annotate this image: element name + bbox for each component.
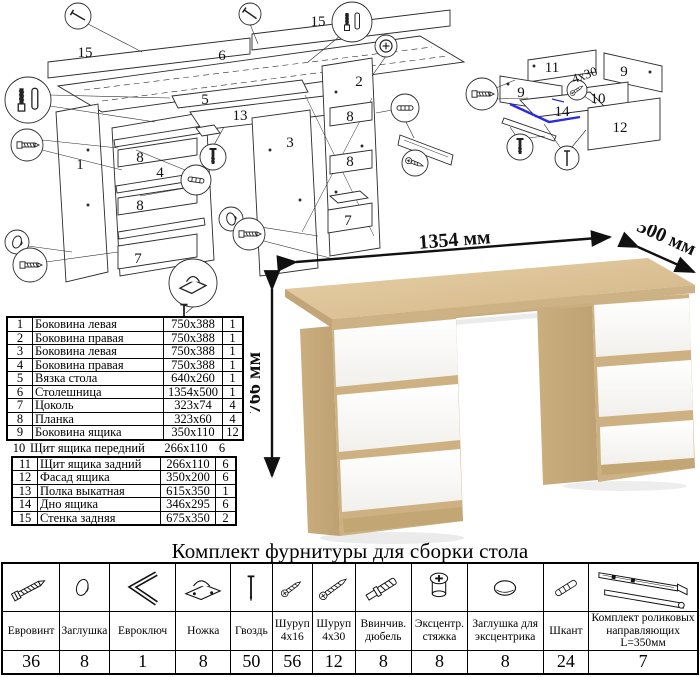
- dowel-icon: [181, 165, 211, 195]
- dowel-icon: [391, 94, 419, 122]
- hardware-qty: 24: [543, 650, 589, 674]
- cam-lock-icon: [375, 35, 397, 57]
- part-name: Вязка стола: [33, 372, 164, 386]
- hardware-name: Шуруп 4х16: [272, 612, 312, 651]
- part-name: Фасад ящика: [38, 471, 161, 485]
- table-row: 14Дно ящика346x2956: [12, 498, 236, 512]
- parts-table-block-b: 11Щит ящика задний266x1106 12Фасад ящика…: [11, 456, 237, 527]
- part-num: 6: [7, 385, 33, 399]
- part-num: 14: [12, 498, 38, 512]
- part-qty: 1: [223, 372, 244, 386]
- hardware-qty: 36: [2, 650, 60, 674]
- part-size: 640x260: [164, 372, 223, 386]
- hardware-name: Евровинт: [2, 612, 60, 651]
- table-row: 5Вязка стола640x2601: [7, 372, 243, 386]
- drawer-front: [600, 420, 694, 465]
- part-num: 5: [7, 372, 33, 386]
- part-label: 3: [286, 135, 294, 151]
- part-label: 6: [218, 48, 226, 64]
- hardware-qty: 8: [176, 650, 231, 674]
- part-label: 14: [555, 104, 571, 120]
- euro-screw-icon: [11, 129, 43, 161]
- parts-table-block-a: 1Боковина левая750x3881 2Боковина правая…: [6, 316, 244, 441]
- part-label: 10: [591, 91, 606, 107]
- table-row: 8Планка323x604: [7, 412, 243, 426]
- part-label: 9: [517, 85, 525, 101]
- screw-in-dowel-icon: [357, 565, 409, 611]
- hardware-names-row: Евровинт Заглушка Евроключ Ножка Гвоздь …: [2, 612, 698, 651]
- part-qty: 6: [216, 457, 237, 471]
- hardware-qty: 1: [109, 650, 176, 674]
- part-label: 12: [613, 120, 628, 136]
- part-size: 615x350: [161, 484, 216, 498]
- part-qty: 1: [223, 345, 244, 359]
- nail-icon: [233, 565, 269, 611]
- part-name: Стенка задняя: [38, 511, 161, 525]
- hardware-qty: 12: [313, 650, 355, 674]
- cam-lock-icon: [415, 565, 463, 611]
- nail-icon: [239, 3, 261, 25]
- drawer-front: [594, 298, 691, 357]
- hardware-qty: 50: [231, 650, 272, 674]
- part-num: 10: [8, 441, 30, 456]
- hardware-name: Ножка: [176, 612, 231, 651]
- wood-dowel-icon: [546, 565, 586, 611]
- part-label: 8: [346, 154, 354, 170]
- table-row: 4Боковина правая750x3881: [7, 358, 243, 372]
- hardware-name: Заглушка для эксцентрика: [467, 612, 543, 651]
- part-size: 750x388: [164, 345, 223, 359]
- parts-table: 1Боковина левая750x3881 2Боковина правая…: [6, 316, 244, 526]
- table-row: 15Стенка задняя675x3502: [12, 511, 236, 525]
- part-name: Цоколь: [33, 399, 164, 413]
- table-row: 13Полка выкатная615x3501: [12, 484, 236, 498]
- part-num: 4: [7, 358, 33, 372]
- part-name: Полка выкатная: [38, 484, 161, 498]
- left-pedestal: [300, 315, 463, 536]
- drawer-exploded-view: 11 9 9 10 14 12 4x30: [466, 50, 662, 170]
- part-name: Боковина правая: [33, 331, 164, 345]
- part-qty: 6: [214, 441, 230, 456]
- cap-icon: [62, 565, 106, 611]
- part-label: 9: [620, 64, 628, 80]
- hardware-name: Заглушка: [60, 612, 110, 651]
- right-pedestal: [537, 294, 695, 485]
- part-size: 350x110: [164, 426, 223, 440]
- part-qty: 6: [216, 498, 237, 512]
- part-size: 350x200: [161, 471, 216, 485]
- part-name: Боковина левая: [33, 345, 164, 359]
- part-size: 266x110: [161, 457, 216, 471]
- drawer-front: [337, 384, 460, 452]
- hardware-name: Ввинчив. дюбель: [355, 612, 412, 651]
- part-num: 11: [12, 457, 38, 471]
- part-num: 2: [7, 331, 33, 345]
- hardware-name: Шуруп 4х30: [313, 612, 355, 651]
- part-num: 3: [7, 345, 33, 359]
- euro-screw-icon: [6, 565, 56, 611]
- part-size: 266x110: [158, 441, 214, 456]
- part-size: 323x60: [164, 412, 223, 426]
- table-row: 10 Щит ящика передний 266x110 6: [6, 441, 244, 456]
- part-num: 1: [7, 317, 33, 331]
- hardware-qty: 8: [355, 650, 412, 674]
- part-label: 1: [76, 157, 84, 173]
- depth-dimension-label: 500 мм: [634, 225, 700, 260]
- part-label: 7: [134, 251, 142, 267]
- foot-icon: [169, 259, 217, 307]
- part-num: 12: [12, 471, 38, 485]
- drawer-front: [597, 360, 693, 417]
- part-num: 8: [7, 412, 33, 426]
- nail-icon: [555, 146, 579, 170]
- hex-key-icon: [113, 565, 173, 611]
- part-qty: 6: [216, 471, 237, 485]
- part-size: 346x295: [161, 498, 216, 512]
- part-qty: 1: [216, 484, 237, 498]
- table-row: 3Боковина левая750x3881: [7, 345, 243, 359]
- part-size: 675x350: [161, 511, 216, 525]
- part-num: 7: [7, 399, 33, 413]
- hardware-kit-title: Комплект фурнитуры для сборки стола: [0, 539, 700, 564]
- part-name: Боковина ящика: [33, 426, 164, 440]
- part-name: Щит ящика задний: [38, 457, 161, 471]
- part-num: 13: [12, 484, 38, 498]
- roller-guides-icon: [592, 565, 694, 611]
- part-size: 323x74: [164, 399, 223, 413]
- part-qty: 1: [223, 331, 244, 345]
- hardware-name: Шкант: [543, 612, 589, 651]
- screw-4x16-icon: [274, 565, 310, 611]
- table-row: 11Щит ящика задний266x1106: [12, 457, 236, 471]
- nail-icon: [65, 3, 91, 29]
- part-name: Щит ящика передний: [30, 441, 158, 456]
- part-name: Боковина левая: [33, 317, 164, 331]
- part-qty: 1: [223, 358, 244, 372]
- hardware-qty: 8: [467, 650, 543, 674]
- part-name: Дно ящика: [38, 498, 161, 512]
- part-name: Столешница: [33, 385, 164, 399]
- part-num: 15: [12, 511, 38, 525]
- table-row: 2Боковина правая750x3881: [7, 331, 243, 345]
- hardware-name: Комплект роликовых направляющих L=350мм: [589, 612, 698, 651]
- part-size: 1354x500: [164, 385, 223, 399]
- foot-icon: [178, 565, 228, 611]
- hardware-name: Эксцентр. стяжка: [412, 612, 468, 651]
- cam-cap-icon: [475, 565, 535, 611]
- part-label: 15: [78, 45, 93, 61]
- height-dimension-label: 766 мм: [250, 352, 265, 414]
- part-label: 11: [545, 60, 559, 76]
- screw-4x30-icon: [314, 565, 354, 611]
- hardware-name: Гвоздь: [231, 612, 272, 651]
- part-label: 2: [355, 74, 363, 90]
- part-name: Планка: [33, 412, 164, 426]
- part-size: 750x388: [164, 331, 223, 345]
- hardware-qty: 8: [412, 650, 468, 674]
- width-dimension-label: 1354 мм: [418, 226, 492, 254]
- part-qty: 12: [223, 426, 244, 440]
- confirmat-bolt-icon: [200, 144, 226, 170]
- table-row: 12Фасад ящика350x2006: [12, 471, 236, 485]
- hardware-table: Евровинт Заглушка Евроключ Ножка Гвоздь …: [1, 562, 699, 675]
- part-size: 750x388: [164, 358, 223, 372]
- table-row: 9Боковина ящика350x11012: [7, 426, 243, 440]
- part-qty: 1: [223, 385, 244, 399]
- part-label: 4: [156, 165, 164, 181]
- screw-icon: [402, 150, 428, 176]
- part-num: 9: [7, 426, 33, 440]
- table-row: 6Столешница1354x5001: [7, 385, 243, 399]
- dowel-sleeve-icon: [5, 77, 51, 123]
- euro-screw-icon: [13, 248, 47, 282]
- dowel-sleeve-icon: [332, 2, 372, 42]
- product-photo: 1354 мм 500 мм 766 мм: [250, 225, 700, 547]
- drawer-front: [334, 319, 458, 387]
- table-row: 1Боковина левая750x3881: [7, 317, 243, 331]
- hardware-icons-row: [2, 563, 698, 612]
- part-label: 5: [201, 92, 209, 108]
- part-qty: 4: [223, 399, 244, 413]
- part-label: 8: [136, 198, 144, 214]
- part-qty: 4: [223, 412, 244, 426]
- confirmat-bolt-icon: [507, 134, 533, 160]
- part-label: 8: [346, 109, 354, 125]
- part-label: 8: [136, 150, 144, 166]
- part-label: 15: [311, 14, 326, 30]
- table-row: 7Цоколь323x744: [7, 399, 243, 413]
- hardware-qty: 56: [272, 650, 312, 674]
- hardware-name: Евроключ: [109, 612, 176, 651]
- hardware-qty: 7: [589, 650, 698, 674]
- part-size: 750x388: [164, 317, 223, 331]
- hardware-qty-row: 36 8 1 8 50 56 12 8 8 8 24 7: [2, 650, 698, 674]
- part-name: Боковина правая: [33, 358, 164, 372]
- hardware-qty: 8: [60, 650, 110, 674]
- part-label: 13: [233, 108, 248, 124]
- euro-screw-icon: [466, 78, 498, 110]
- part-qty: 1: [223, 317, 244, 331]
- left-side-part: [56, 104, 108, 282]
- part-qty: 2: [216, 511, 237, 525]
- instruction-sheet: 15 15 6 5 13 3 2 1 8 4 8 7 8 8 7: [0, 0, 700, 677]
